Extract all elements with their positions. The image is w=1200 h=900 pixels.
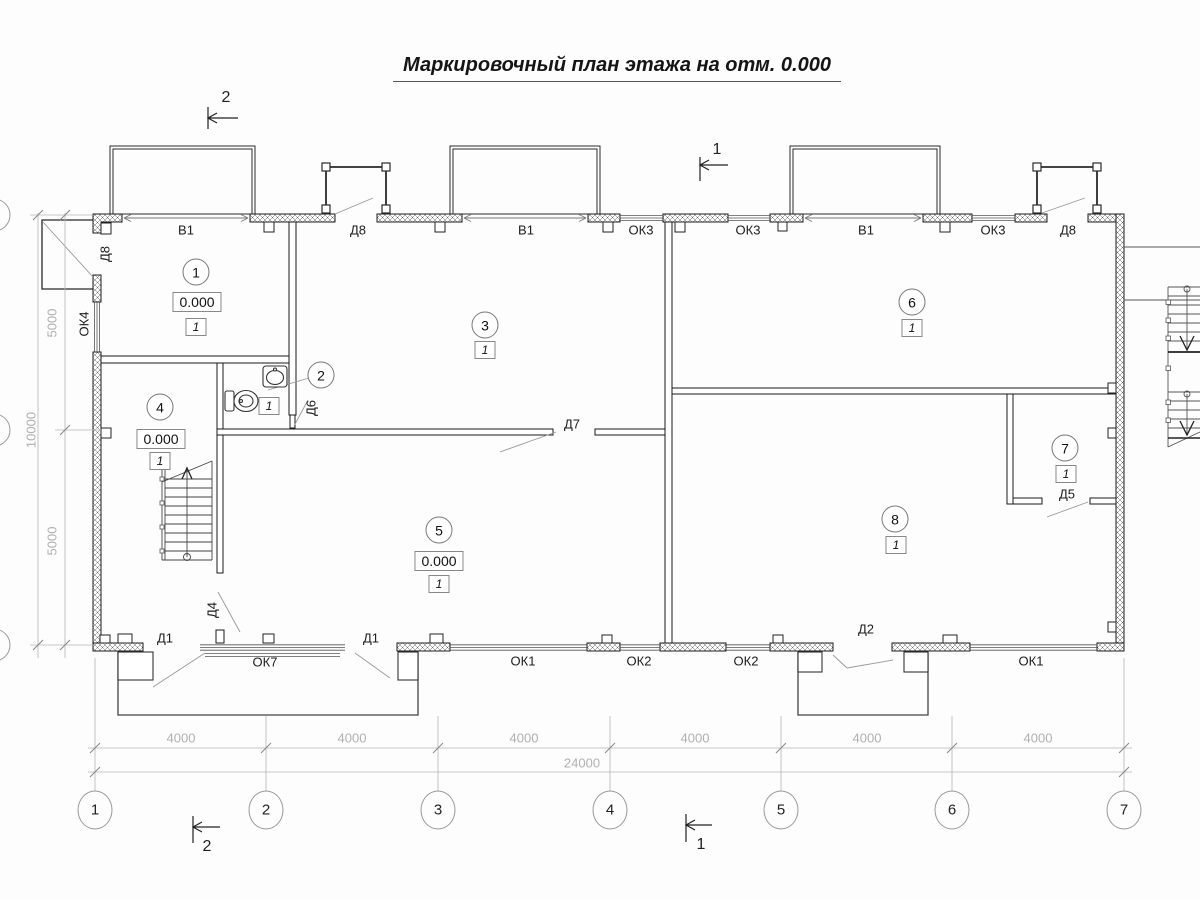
opening-label-ок1: ОК1: [511, 654, 536, 669]
left-axis-bubbles: [0, 199, 10, 661]
opening-label-ок1: ОК1: [1019, 654, 1044, 669]
section-mark-label-2: 2: [203, 838, 212, 856]
internal-staircase: [160, 461, 212, 561]
canopy-outlines: [110, 146, 940, 214]
elevation-mark: 0.000: [136, 429, 185, 449]
room-number-badge-1: 1: [183, 259, 210, 286]
dimension-label: 4000: [338, 731, 367, 746]
section-mark-label-1: 1: [697, 836, 706, 854]
opening-label-ок2: ОК2: [627, 654, 652, 669]
drawing-title: Маркировочный план этажа на отм. 0.000: [393, 54, 841, 82]
elevation-mark: 0.000: [172, 292, 221, 312]
room-type-mark: 1: [1056, 465, 1077, 483]
floor-plan-canvas: Маркировочный план этажа на отм. 0.000 В…: [0, 0, 1200, 900]
opening-label-ок7: ОК7: [253, 655, 278, 670]
interior-walls: [101, 222, 1116, 643]
room-number-badge-4: 4: [147, 394, 174, 421]
opening-label-в1: В1: [518, 223, 534, 238]
opening-label-д6: Д6: [304, 400, 319, 416]
axis-bubble-4: 4: [593, 791, 628, 830]
axis-bubble-3: 3: [421, 791, 456, 830]
opening-label-ок3: ОК3: [629, 223, 654, 238]
dimension-label: 4000: [510, 731, 539, 746]
room-type-mark: 1: [902, 319, 923, 337]
dimension-label-vertical: 5000: [45, 309, 60, 338]
room-type-mark: 1: [186, 318, 207, 336]
opening-label-ок3: ОК3: [981, 223, 1006, 238]
dimension-label: 4000: [853, 731, 882, 746]
opening-label-д7: Д7: [564, 417, 580, 432]
dimension-label: 4000: [1024, 731, 1053, 746]
opening-label-д5: Д5: [1059, 487, 1075, 502]
dimension-label-vertical: 10000: [24, 412, 39, 448]
room-number-badge-2: 2: [308, 362, 335, 389]
left-porch-outline: [42, 220, 93, 289]
opening-label-д1: Д1: [363, 631, 379, 646]
opening-label-ок4: ОК4: [77, 312, 92, 337]
room-number-badge-6: 6: [899, 289, 926, 316]
opening-label-ок3: ОК3: [736, 223, 761, 238]
opening-label-ок2: ОК2: [734, 654, 759, 669]
axis-bubble-6: 6: [935, 791, 970, 830]
room-number-badge-3: 3: [472, 312, 499, 339]
room-number-badge-7: 7: [1052, 435, 1079, 462]
opening-label-д8: Д8: [350, 223, 366, 238]
dimension-total-label: 24000: [564, 756, 600, 771]
exterior-staircase: [1124, 247, 1200, 447]
opening-label-д8: Д8: [1060, 223, 1076, 238]
elevation-mark: 0.000: [414, 551, 463, 571]
room-number-badge-5: 5: [426, 517, 453, 544]
room-type-mark: 1: [150, 452, 171, 470]
room-type-mark: 1: [475, 341, 496, 359]
room-number-badge-8: 8: [882, 506, 909, 533]
opening-label-д4: Д4: [205, 602, 220, 618]
opening-label-д1: Д1: [157, 631, 173, 646]
axis-bubble-5: 5: [764, 791, 799, 830]
opening-label-в1: В1: [178, 223, 194, 238]
axis-bubble-7: 7: [1107, 791, 1142, 830]
room-type-mark: 1: [429, 575, 450, 593]
section-mark-label-2: 2: [222, 89, 231, 107]
dimension-label: 4000: [681, 731, 710, 746]
opening-label-д8: Д8: [98, 246, 113, 262]
axis-bubble-1: 1: [78, 791, 113, 830]
entry-vestibules: [322, 163, 1101, 213]
section-mark-label-1: 1: [713, 141, 722, 159]
opening-label-в1: В1: [858, 223, 874, 238]
room-type-mark: 1: [886, 536, 907, 554]
window-glazing: [95, 216, 1098, 657]
axis-bubble-2: 2: [249, 791, 284, 830]
dimension-label: 4000: [167, 731, 196, 746]
opening-label-д2: Д2: [858, 622, 874, 637]
dimension-label-vertical: 5000: [45, 527, 60, 556]
room-type-mark: 1: [259, 397, 280, 415]
